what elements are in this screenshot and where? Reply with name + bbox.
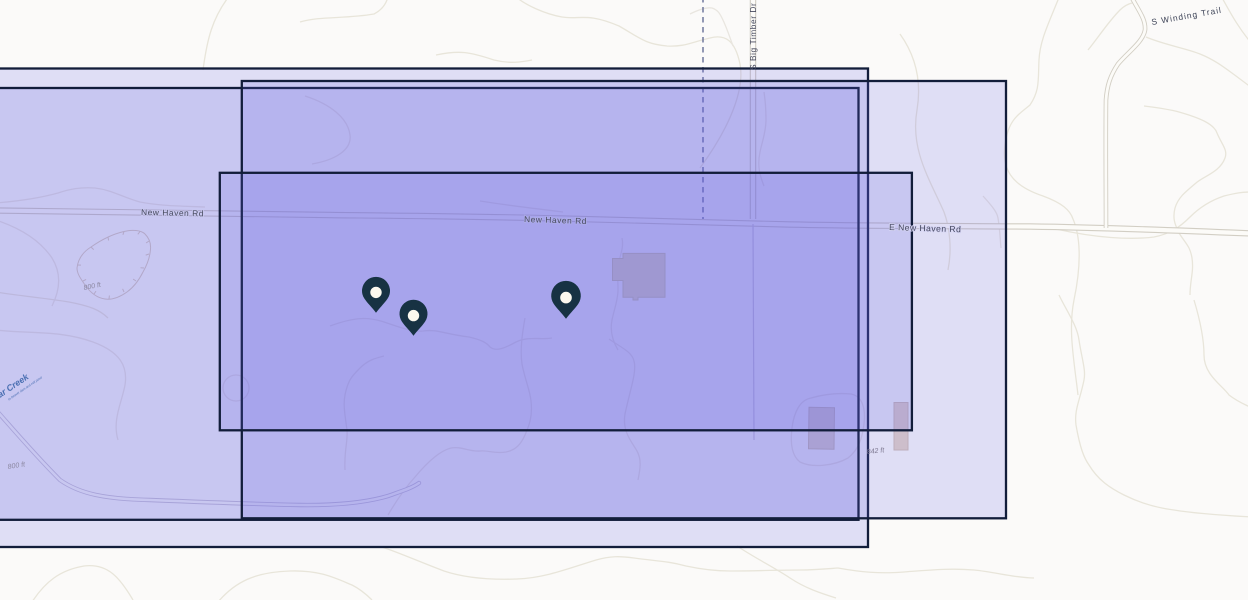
- svg-text:S Big Timber Dr: S Big Timber Dr: [748, 3, 758, 70]
- svg-text:New Haven Rd: New Haven Rd: [524, 214, 587, 226]
- svg-text:New Haven Rd: New Haven Rd: [141, 207, 204, 218]
